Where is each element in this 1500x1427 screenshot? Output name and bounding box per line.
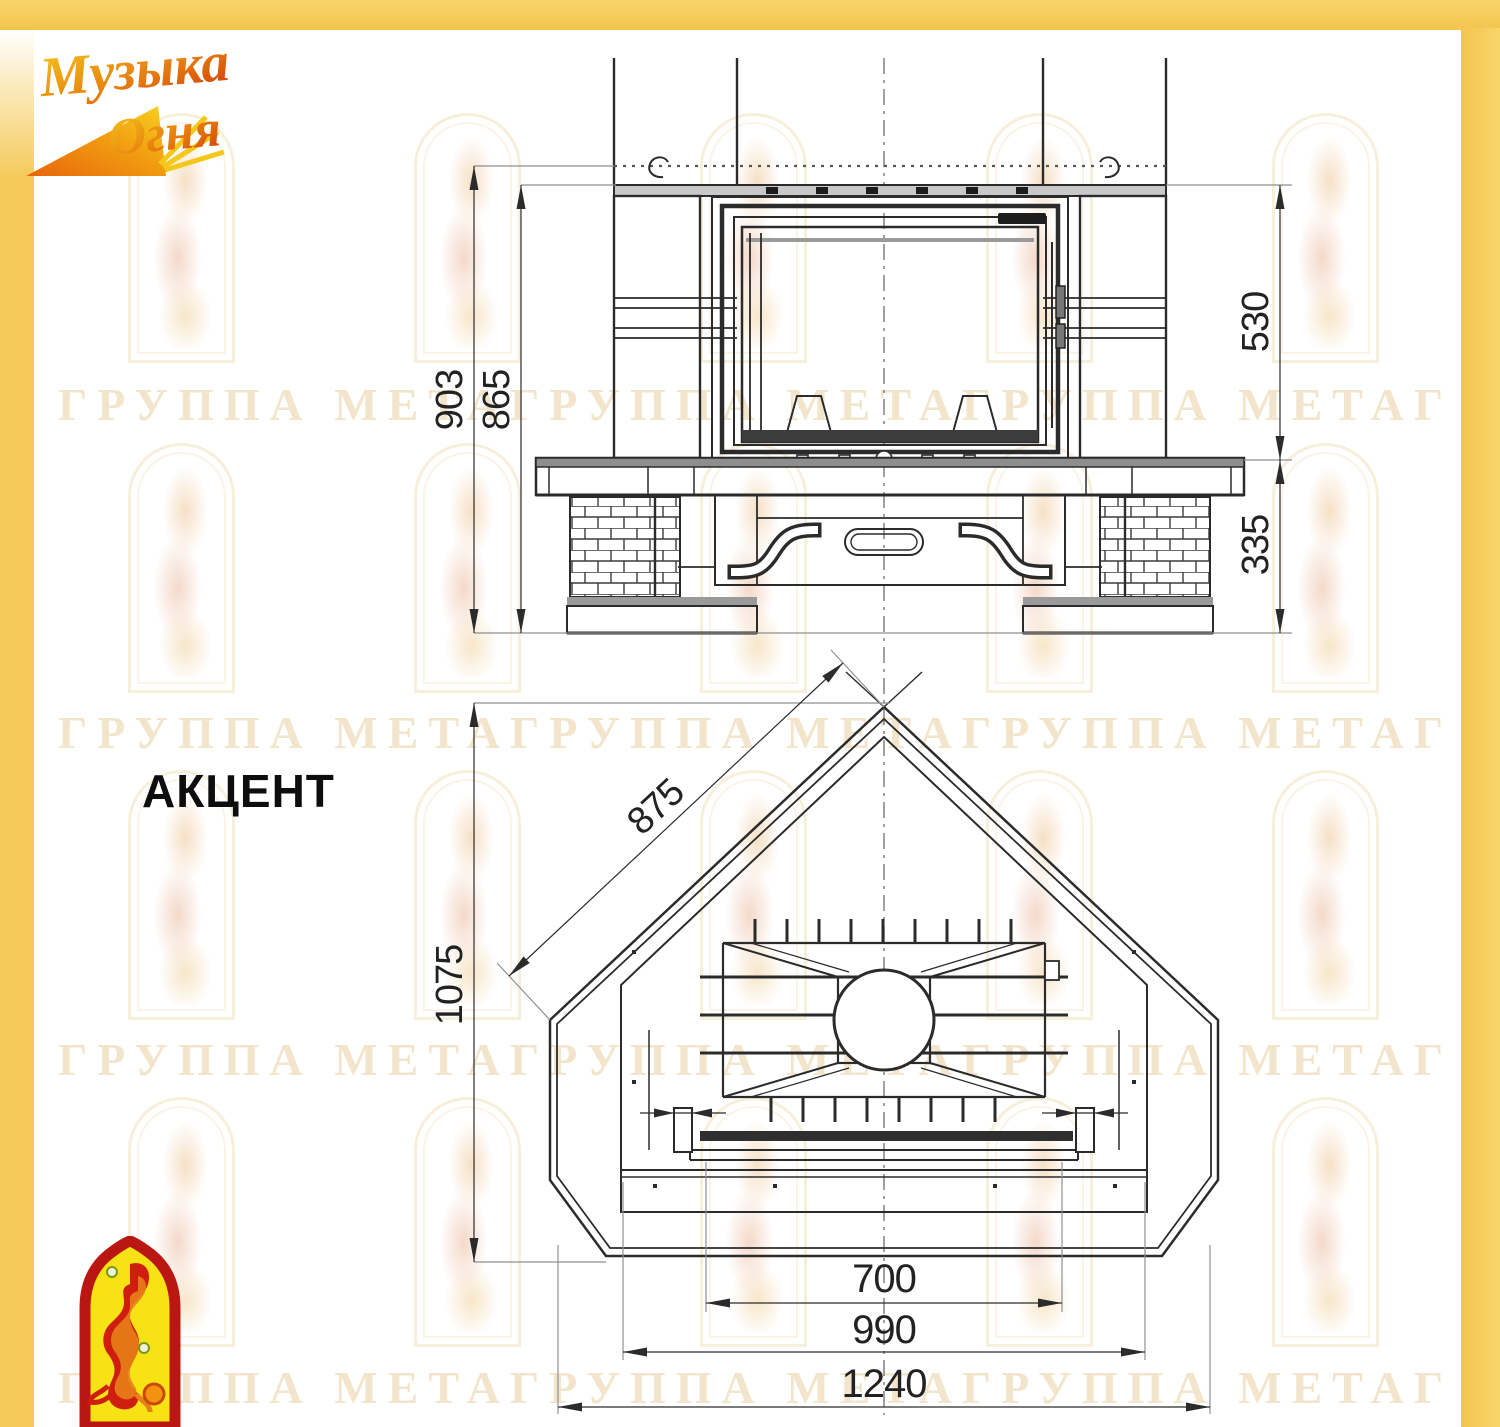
door-latch [1056, 324, 1065, 348]
plan-view: 1075 875 700 990 1240 [429, 650, 1218, 1414]
brand-logo: Музыка Огня [8, 14, 268, 199]
shelf-joints [549, 467, 1231, 495]
column-grooves [614, 298, 1166, 338]
plinth-right [1023, 606, 1213, 633]
plan-grate-bars-top [755, 919, 1011, 943]
column-left [614, 196, 700, 458]
door-handle [1056, 286, 1065, 318]
side-block-right [1076, 1108, 1094, 1152]
dim-firebox-height: 530 [1235, 292, 1277, 352]
door-hinge-lines [750, 233, 761, 436]
latch-tab [1045, 961, 1059, 980]
flue-collar [834, 970, 934, 1070]
fire-dancer-logo [78, 1236, 182, 1427]
logo-text-line1: Музыка [36, 31, 231, 109]
brick-pedestal-left [570, 497, 680, 597]
grate-strip [742, 430, 1038, 442]
door-glass [742, 227, 1038, 442]
door-inner-frame [734, 217, 1046, 445]
pedestal-cap-left [567, 597, 757, 606]
sun-dot [144, 1384, 164, 1404]
hook-symbol-left [649, 157, 668, 177]
brick-pedestal-right [1100, 497, 1210, 597]
dim-base-height: 335 [1235, 515, 1277, 575]
column-right [1080, 196, 1166, 458]
firebox-brand-plate [998, 213, 1046, 224]
page: { "model": { "name": "АКЦЕНТ" }, "brand"… [0, 0, 1500, 1427]
dim-front-width: 700 [852, 1257, 916, 1301]
decor-scroll-right [966, 530, 1045, 572]
dim-overall-width: 1240 [842, 1362, 927, 1406]
firebox-door-frame [722, 206, 1058, 452]
dim-overall-height: 903 [429, 370, 471, 430]
pedestal-joints [655, 497, 1125, 597]
pedestal-cap-right [1023, 597, 1213, 606]
plinth-left [567, 606, 757, 633]
hook-symbol-right [1100, 157, 1119, 177]
model-name-label: АКЦЕНТ [142, 764, 335, 818]
decor-panel [715, 495, 1065, 585]
dim-body-height: 865 [476, 370, 518, 430]
hearth-front [700, 1131, 1073, 1141]
firebox-casing [712, 197, 1068, 460]
dim-mid-width: 990 [852, 1308, 916, 1352]
frame-left-stripe [0, 28, 34, 1427]
cabinet-top-band [614, 185, 1166, 196]
shelf-top-strip [536, 458, 1244, 467]
decor-scroll-left [735, 530, 814, 572]
side-block-left [674, 1108, 692, 1152]
frame-right-stripe [1461, 28, 1500, 1427]
plan-grate-bars-bottom [771, 1097, 995, 1122]
dim-depth: 1075 [429, 945, 471, 1026]
logo-text-line2: Огня [106, 100, 223, 167]
dim-diagonal: 875 [619, 771, 692, 843]
technical-drawing: 903 865 530 335 [0, 0, 1500, 1427]
plan-dimensions: 1075 875 700 990 1240 [429, 650, 1210, 1414]
front-elevation-view: 903 865 530 335 [429, 58, 1292, 633]
